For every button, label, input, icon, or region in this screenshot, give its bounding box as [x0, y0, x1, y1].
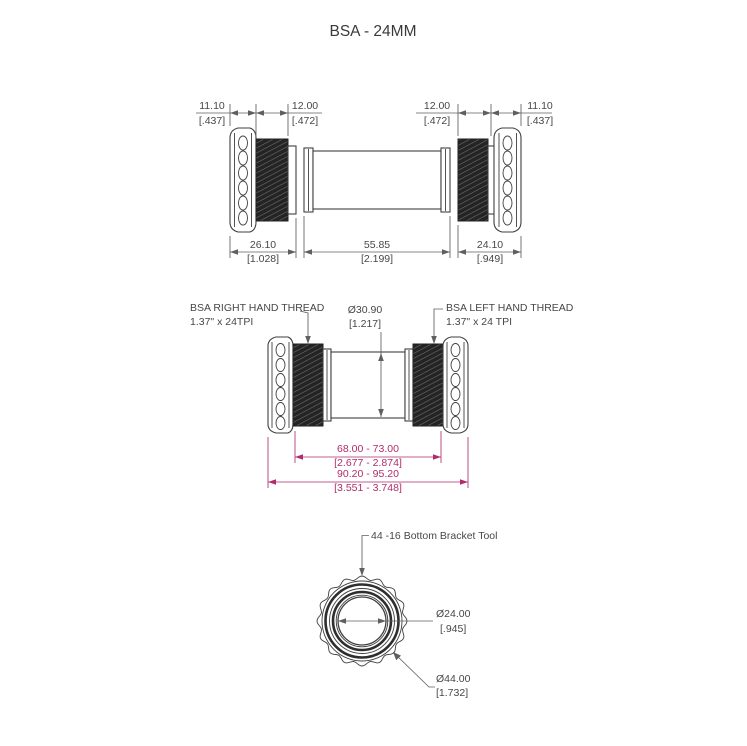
dim-flange-left-in: [.437]: [199, 115, 225, 127]
inner-diameter-dimension: Ø24.00 [.945]: [338, 608, 471, 635]
bore-dia-in: [1.217]: [349, 318, 381, 330]
bore-dia-mm: Ø30.90: [348, 304, 383, 316]
dim-left-cup-width-mm: 26.10: [250, 239, 276, 251]
dim-thread-right-mm: 12.00: [424, 100, 450, 112]
top-view-lower-dimensions: 26.10 [1.028] 55.85 [2.199] 24.10 [.949]: [230, 216, 521, 265]
middle-view: BSA RIGHT HAND THREAD 1.37" x 24TPI BSA …: [190, 302, 574, 494]
dim-flange-right-mm: 11.10: [527, 100, 553, 112]
dim-right-cup-width-mm: 24.10: [477, 239, 503, 251]
overall-width-mm: 90.20 - 95.20: [337, 468, 399, 480]
tool-callout: 44 -16 Bottom Bracket Tool: [359, 530, 497, 576]
assembled-tube: [323, 349, 413, 421]
outer-dia-mm: Ø44.00: [436, 673, 471, 685]
tool-label: 44 -16 Bottom Bracket Tool: [371, 530, 497, 542]
dim-thread-left-in: [.472]: [292, 115, 318, 127]
inner-dia-mm: Ø24.00: [436, 608, 471, 620]
assembled-right-flange: [443, 337, 468, 433]
drawing-title: BSA - 24MM: [330, 23, 417, 40]
left-hand-thread-label: BSA LEFT HAND THREAD: [446, 302, 574, 314]
left-hand-thread-spec: 1.37" x 24 TPI: [446, 316, 512, 328]
bottom-view: 44 -16 Bottom Bracket Tool Ø24.00 [.945]…: [317, 530, 497, 699]
dim-tube-width-mm: 55.85: [364, 239, 390, 251]
assembled-left-threads: [293, 344, 323, 426]
dim-flange-right-in: [.437]: [527, 115, 553, 127]
overall-width-in: [3.551 - 3.748]: [334, 482, 402, 494]
right-hand-thread-spec: 1.37" x 24TPI: [190, 316, 253, 328]
outer-diameter-dimension: Ø44.00 [1.732]: [393, 652, 471, 699]
left-cup-threads: [256, 139, 288, 221]
outer-dia-in: [1.732]: [436, 687, 468, 699]
right-cup: [458, 128, 521, 232]
inner-dia-in: [.945]: [440, 623, 466, 635]
technical-drawing-canvas: BSA - 24MM: [0, 0, 747, 746]
dim-right-cup-width-in: [.949]: [477, 253, 503, 265]
technical-drawing-page: BSA - 24MM: [0, 0, 747, 746]
center-tube: [304, 148, 450, 212]
shell-width-dimensions: 68.00 - 73.00 [2.677 - 2.874] 90.20 - 95…: [268, 431, 468, 494]
dim-left-cup-width-in: [1.028]: [247, 253, 279, 265]
dim-flange-left-mm: 11.10: [199, 100, 225, 112]
assembled-right-threads: [413, 344, 443, 426]
top-view: 11.10 [.437] 12.00 [.472] 12.00 [.472] 1…: [196, 100, 553, 265]
dim-thread-left-mm: 12.00: [292, 100, 318, 112]
left-cup: [230, 128, 296, 232]
dim-thread-right-in: [.472]: [424, 115, 450, 127]
assembled-left-flange: [268, 337, 293, 433]
right-cup-threads: [458, 139, 488, 221]
shell-width-mm: 68.00 - 73.00: [337, 443, 399, 455]
dim-tube-width-in: [2.199]: [361, 253, 393, 265]
left-cup-ring: [288, 146, 296, 214]
